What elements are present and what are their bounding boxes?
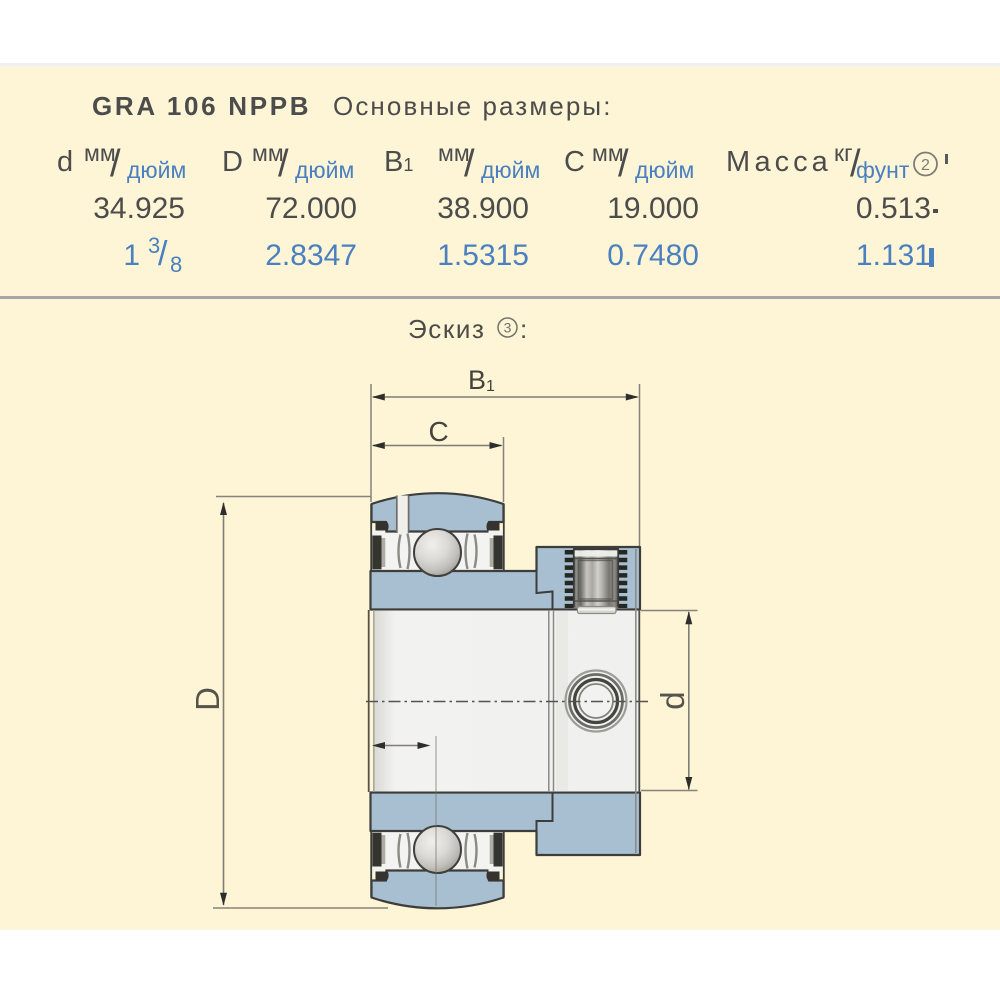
- svg-text:C: C: [429, 416, 449, 447]
- svg-text:B: B: [468, 365, 486, 395]
- svg-text:2: 2: [921, 157, 930, 174]
- svg-text:3: 3: [504, 320, 512, 336]
- svg-text:Эскиз: Эскиз: [408, 314, 486, 344]
- svg-text:d: d: [654, 691, 691, 709]
- svg-text::: :: [520, 314, 527, 344]
- svg-text:D: D: [189, 687, 226, 711]
- svg-text:1: 1: [486, 378, 495, 395]
